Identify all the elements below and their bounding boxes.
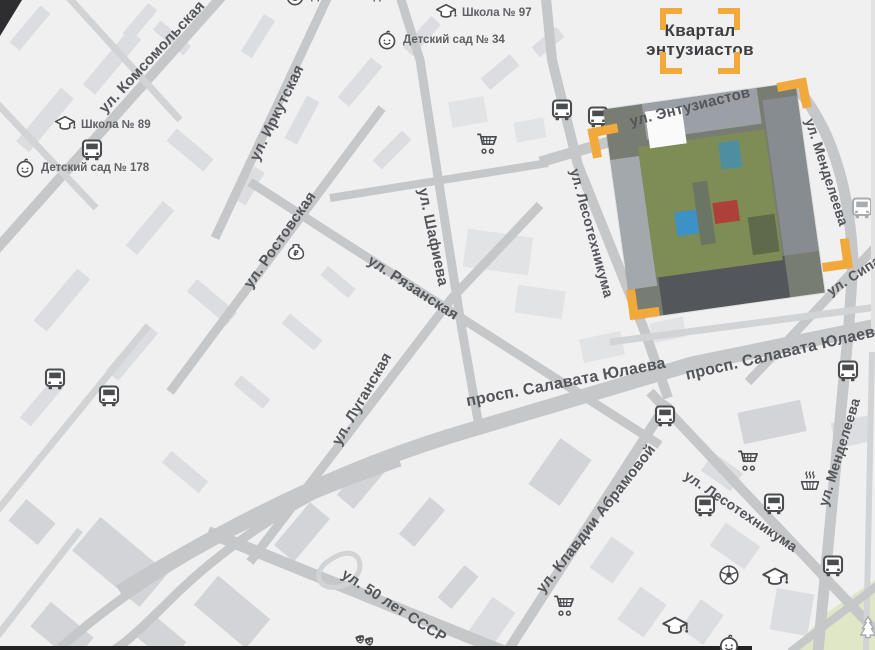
poi-label-kindergarten: Детский сад № xyxy=(284,0,397,7)
poi-label-text: Детский сад № 178 xyxy=(41,162,149,174)
building xyxy=(72,517,168,607)
photo-detail xyxy=(712,200,740,224)
baby-icon xyxy=(379,31,394,48)
photo-detail xyxy=(718,140,743,170)
logo-corner-icon xyxy=(718,52,740,74)
map-edge xyxy=(0,646,752,650)
highlight-corner-icon xyxy=(776,77,811,112)
shopping-cart-icon xyxy=(477,134,496,153)
shopping-cart-icon xyxy=(738,451,757,470)
building xyxy=(162,451,208,493)
building xyxy=(770,588,815,636)
poi-label-school: Школа № 89 xyxy=(54,114,151,136)
tram-icon xyxy=(765,495,783,515)
building xyxy=(373,131,412,170)
building xyxy=(438,565,479,609)
shopping-cart-icon xyxy=(554,596,573,615)
graduation-cap-icon xyxy=(435,2,457,24)
building xyxy=(514,285,565,319)
graduation-cap-icon xyxy=(56,117,76,129)
map-edge xyxy=(871,0,875,330)
building xyxy=(399,497,445,547)
graduation-cap-icon xyxy=(763,569,788,584)
graduation-cap-icon xyxy=(54,114,76,136)
building xyxy=(282,314,323,351)
poi-label-text: Школа № 89 xyxy=(81,119,151,131)
building xyxy=(8,499,55,545)
tram-icon xyxy=(656,407,674,427)
building xyxy=(234,375,271,409)
tram-icon xyxy=(46,370,64,390)
building xyxy=(528,438,591,506)
ruble-moneybag-icon: ₽ xyxy=(289,245,304,259)
baby-icon xyxy=(17,159,32,176)
tram-icon xyxy=(824,557,842,577)
poi-label-kindergarten: Детский сад № 34 xyxy=(376,29,505,51)
baby-icon xyxy=(721,635,737,650)
svg-text:₽: ₽ xyxy=(293,249,299,258)
highlight-corner-icon xyxy=(819,238,853,272)
road xyxy=(398,0,480,432)
building xyxy=(481,54,520,90)
graduation-cap-icon xyxy=(437,5,457,17)
building xyxy=(194,576,271,649)
poi-label-text: Школа № 97 xyxy=(462,7,532,19)
building xyxy=(737,400,806,445)
poi-label-kindergarten: Детский сад № 178 xyxy=(14,157,149,179)
photo-detail xyxy=(748,214,780,256)
building xyxy=(590,536,635,583)
tram-icon xyxy=(553,101,571,121)
logo-corner-icon xyxy=(718,8,740,30)
map-edge xyxy=(0,0,22,36)
baby-icon xyxy=(284,0,306,7)
building xyxy=(34,268,91,331)
poi-label-school: Школа № 97 xyxy=(435,2,532,24)
quarter-logo: Квартал энтузиастов xyxy=(650,8,750,74)
highlight-corner-icon xyxy=(626,286,660,320)
baby-icon xyxy=(376,29,398,51)
baby-icon xyxy=(14,157,36,179)
highlight-corner-icon xyxy=(587,123,622,158)
map-canvas: ₽ Квартал энтузиастов ул. Комсомольскаяу… xyxy=(0,0,875,650)
soccer-ball-icon xyxy=(720,566,738,584)
food-basket-icon xyxy=(802,472,819,489)
building xyxy=(710,522,760,569)
building xyxy=(241,14,275,58)
road xyxy=(0,326,148,522)
building xyxy=(10,5,51,50)
poi-label-text: Детский сад № xyxy=(311,0,397,2)
logo-corner-icon xyxy=(660,52,682,74)
baby-icon xyxy=(287,0,302,5)
building xyxy=(166,128,213,171)
building xyxy=(338,57,383,106)
building xyxy=(126,201,175,255)
building xyxy=(579,331,625,363)
building xyxy=(617,586,666,637)
tram-icon xyxy=(839,362,857,382)
poi-label-text: Детский сад № 34 xyxy=(403,34,505,46)
building xyxy=(448,96,488,128)
building xyxy=(513,118,546,143)
tram-icon xyxy=(100,387,118,407)
building xyxy=(320,266,355,298)
building xyxy=(123,3,158,41)
logo-corner-icon xyxy=(660,8,682,30)
building xyxy=(680,599,724,645)
tram-icon xyxy=(853,199,871,219)
